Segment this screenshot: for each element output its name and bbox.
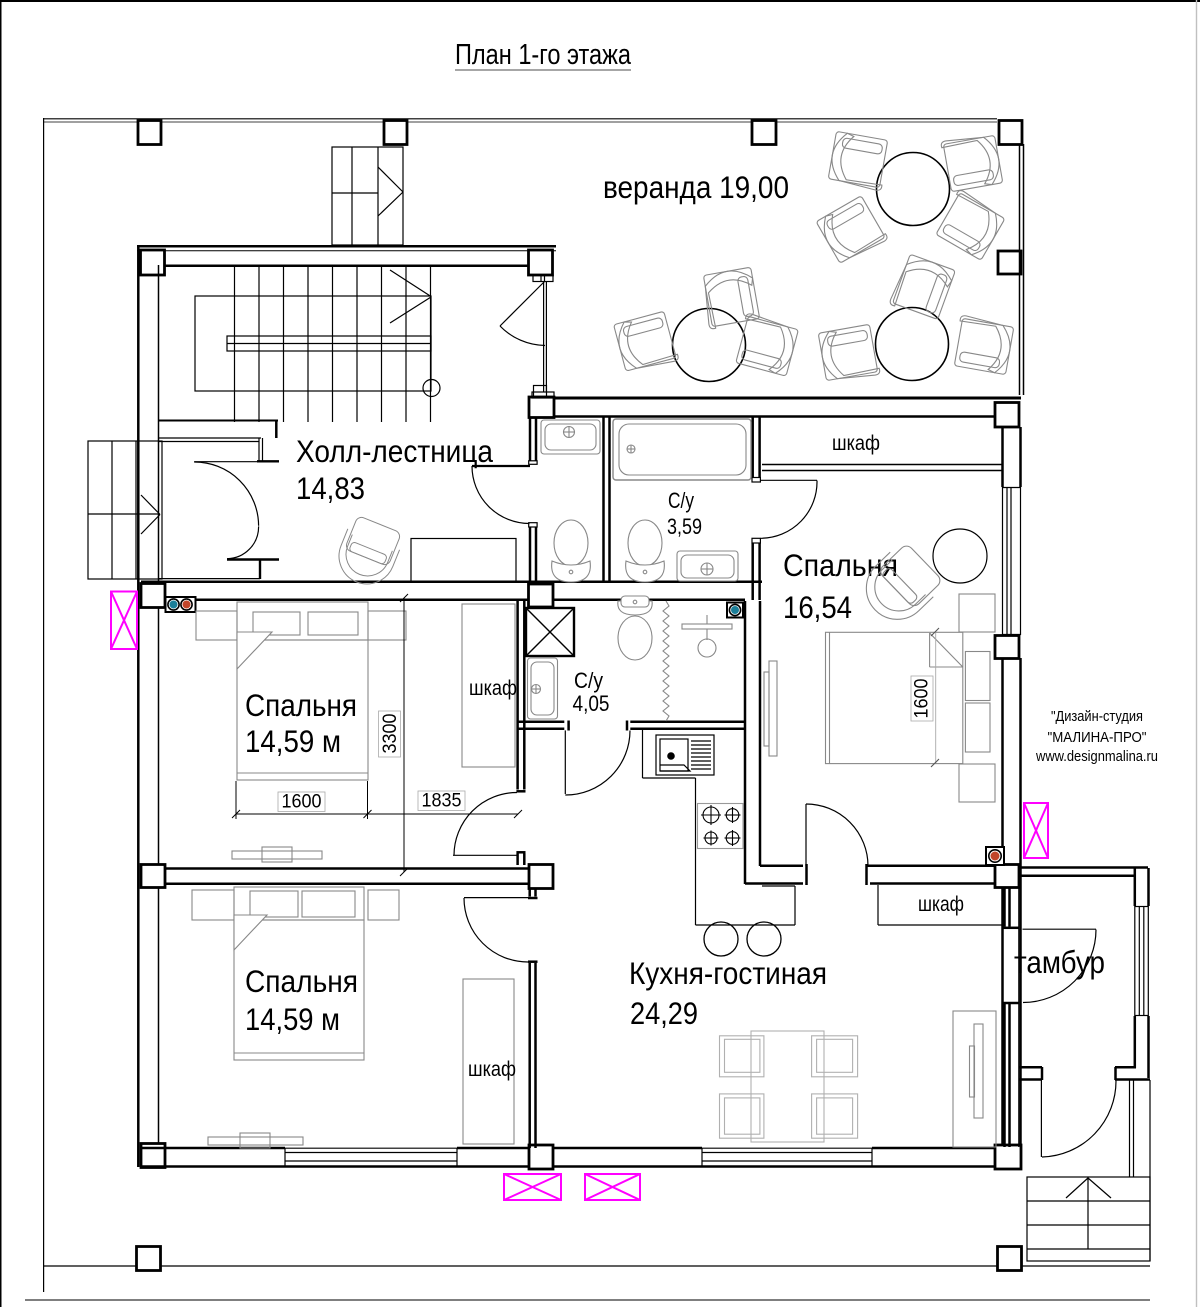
svg-text:Спальня: Спальня: [245, 687, 357, 723]
svg-text:14,59 м: 14,59 м: [245, 723, 341, 759]
svg-text:3,59: 3,59: [667, 514, 702, 539]
svg-text:1600: 1600: [282, 792, 322, 813]
svg-text:1600: 1600: [912, 679, 933, 719]
svg-text:4,05: 4,05: [573, 691, 610, 716]
svg-text:веранда 19,00: веранда 19,00: [603, 169, 789, 205]
svg-text:Спальня: Спальня: [245, 963, 358, 999]
svg-text:шкаф: шкаф: [468, 1058, 516, 1081]
svg-text:Спальня: Спальня: [783, 547, 898, 583]
svg-text:Кухня-гостиная: Кухня-гостиная: [629, 955, 827, 991]
svg-text:шкаф: шкаф: [832, 432, 880, 455]
svg-text:План 1-го этажа: План 1-го этажа: [455, 39, 632, 71]
svg-text:16,54: 16,54: [783, 589, 852, 625]
svg-text:14,59 м: 14,59 м: [245, 1001, 340, 1037]
svg-text:С/у: С/у: [574, 668, 603, 693]
svg-text:www.designmalina.ru: www.designmalina.ru: [1035, 749, 1158, 765]
svg-text:шкаф: шкаф: [469, 677, 517, 700]
svg-text:"Дизайн-студия: "Дизайн-студия: [1051, 709, 1143, 725]
svg-text:24,29: 24,29: [630, 995, 698, 1031]
svg-text:С/у: С/у: [668, 488, 694, 513]
svg-text:шкаф: шкаф: [918, 893, 964, 916]
svg-text:1835: 1835: [422, 791, 462, 812]
svg-text:3300: 3300: [380, 714, 401, 754]
svg-text:"МАЛИНА-ПРО": "МАЛИНА-ПРО": [1048, 730, 1147, 746]
svg-text:14,83: 14,83: [296, 470, 365, 506]
svg-text:тамбур: тамбур: [1014, 944, 1105, 980]
svg-text:Холл-лестница: Холл-лестница: [296, 433, 493, 469]
